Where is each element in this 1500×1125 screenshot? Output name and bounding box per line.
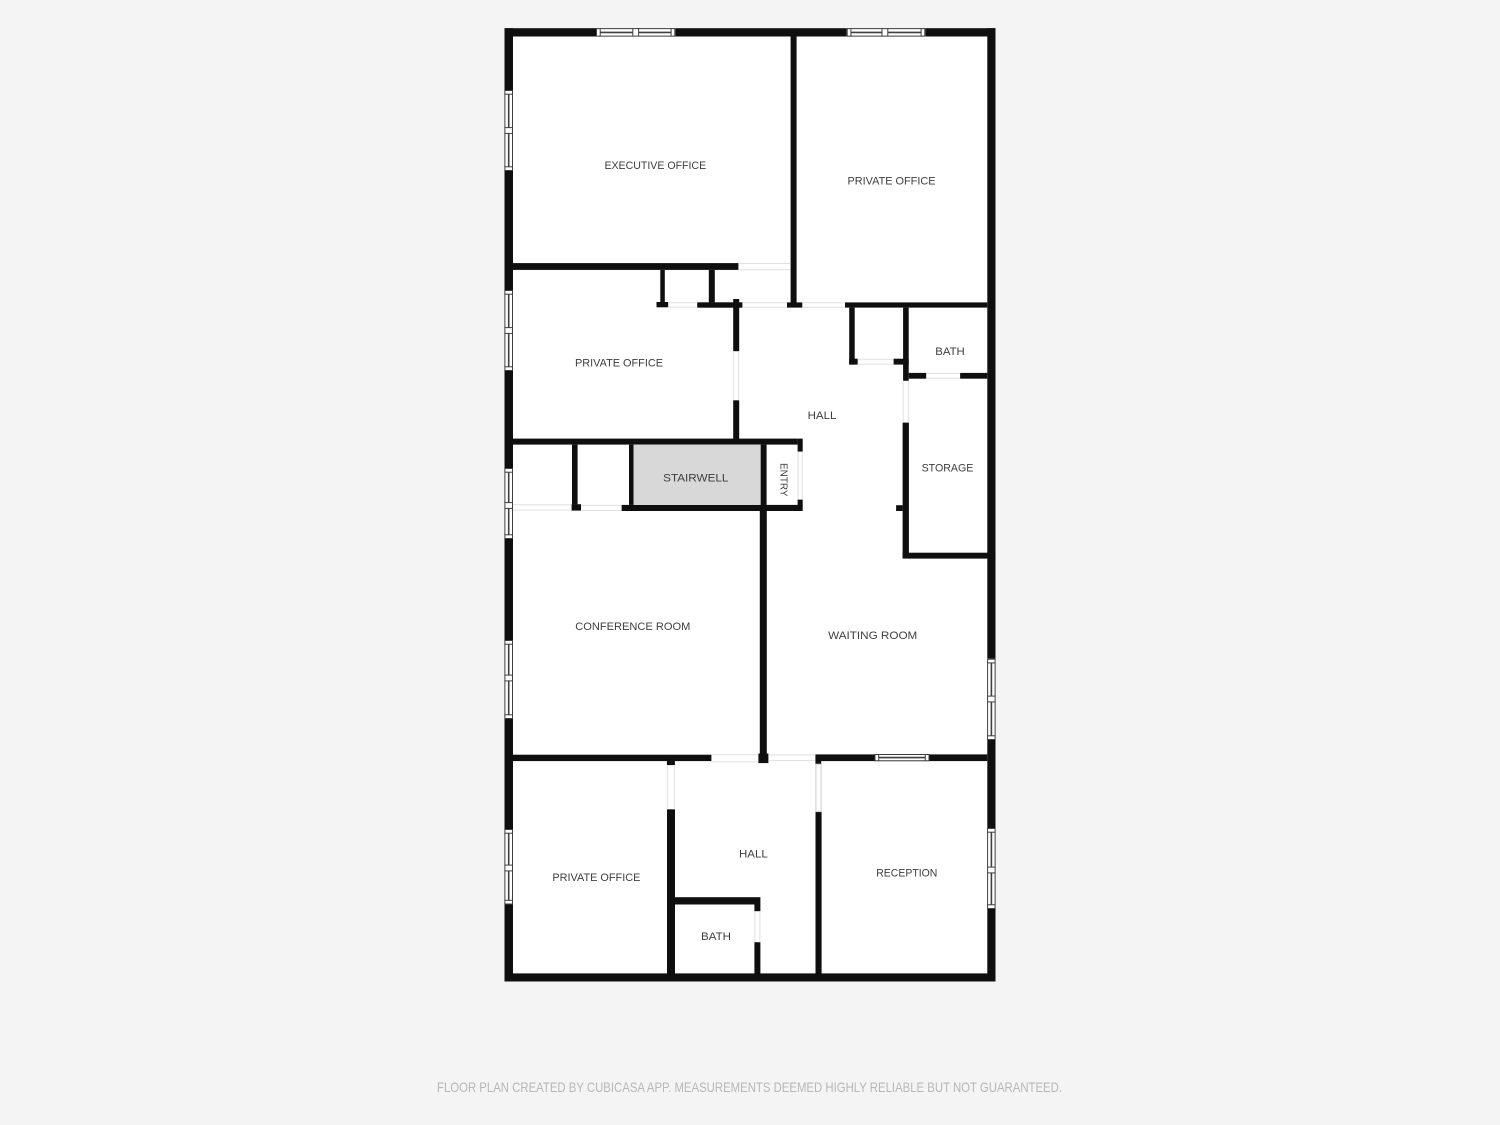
svg-text:BATH: BATH [701,931,731,943]
svg-text:HALL: HALL [808,410,837,422]
svg-text:FLOOR PLAN CREATED BY CUBICASA: FLOOR PLAN CREATED BY CUBICASA APP. MEAS… [437,1079,1062,1095]
svg-text:RECEPTION: RECEPTION [876,868,937,880]
svg-text:CONFERENCE ROOM: CONFERENCE ROOM [575,621,690,633]
svg-text:EXECUTIVE OFFICE: EXECUTIVE OFFICE [604,160,706,172]
svg-text:WAITING ROOM: WAITING ROOM [828,630,917,642]
svg-text:STORAGE: STORAGE [922,463,974,475]
svg-text:STAIRWELL: STAIRWELL [663,472,728,484]
svg-text:PRIVATE OFFICE: PRIVATE OFFICE [848,175,936,187]
svg-text:ENTRY: ENTRY [778,463,790,497]
svg-text:PRIVATE OFFICE: PRIVATE OFFICE [575,358,663,370]
svg-text:HALL: HALL [739,848,768,860]
svg-text:BATH: BATH [935,346,965,358]
svg-text:PRIVATE OFFICE: PRIVATE OFFICE [552,872,640,884]
